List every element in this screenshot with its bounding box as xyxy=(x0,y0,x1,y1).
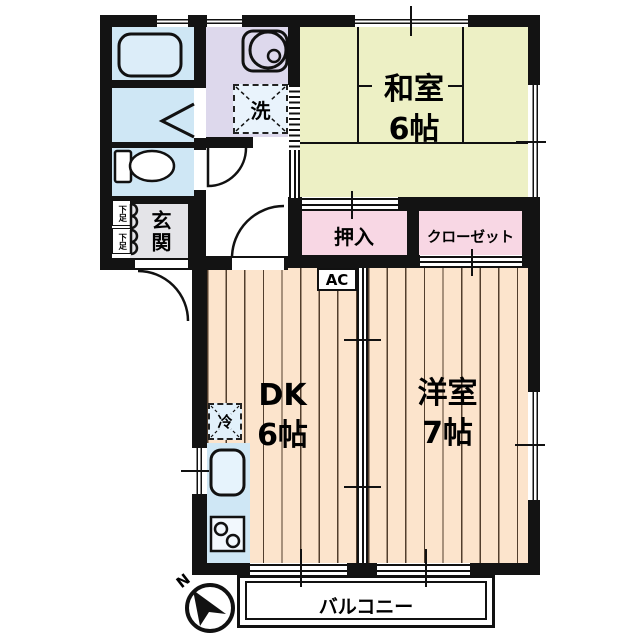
kitchen-counter xyxy=(207,443,250,563)
dk-size: 6帖 xyxy=(225,416,340,456)
wall xyxy=(242,15,355,27)
dk-label: DK 6帖 xyxy=(225,376,340,456)
toilet-room-floor xyxy=(112,148,194,196)
wall xyxy=(194,138,206,150)
balcony-label: バルコニー xyxy=(240,592,492,619)
youshitsu-size: 7帖 xyxy=(375,414,520,454)
door-tick xyxy=(344,486,381,488)
closet-label: クローゼット xyxy=(419,226,522,247)
dk-doorway xyxy=(232,256,284,270)
dk-name: DK xyxy=(225,376,340,416)
window-tick xyxy=(516,141,546,143)
oshiire-fusuma xyxy=(302,198,398,211)
wall xyxy=(522,197,528,255)
north-arrow-icon xyxy=(193,590,226,626)
wall xyxy=(206,137,253,148)
genkan-label: 玄関 xyxy=(150,206,170,258)
entrance-door-arc xyxy=(138,271,188,321)
window xyxy=(529,392,539,500)
compass-north-label: N xyxy=(173,570,194,592)
bathroom-doorway xyxy=(194,88,206,138)
balcony: バルコニー xyxy=(237,575,495,628)
window xyxy=(157,16,188,26)
wall xyxy=(528,197,540,392)
washitsu-sliding-door xyxy=(289,150,300,198)
toilet-doorway xyxy=(194,150,206,190)
window-tick xyxy=(181,470,209,472)
washitsu-size: 6帖 xyxy=(330,110,498,150)
washitsu-label: 和室 6帖 xyxy=(330,70,498,150)
compass-circle xyxy=(187,585,233,631)
ac-label: AC xyxy=(326,271,349,289)
wall xyxy=(528,500,540,575)
door-tick xyxy=(471,249,473,276)
door-tick xyxy=(351,191,353,219)
dk-youshitsu-partition xyxy=(357,268,368,563)
shoe-box-label: 下足 xyxy=(112,200,131,226)
wall xyxy=(407,211,419,255)
shoe-box-label: 下足 xyxy=(112,228,131,254)
wall xyxy=(347,563,377,575)
wall xyxy=(188,15,207,27)
window-tick xyxy=(410,6,412,36)
door-tick xyxy=(344,339,381,341)
window xyxy=(207,16,242,26)
entrance-doorway xyxy=(135,258,188,270)
wall xyxy=(288,255,420,268)
youshitsu-label: 洋室 7帖 xyxy=(375,374,520,454)
wall xyxy=(522,255,540,268)
wall xyxy=(528,15,540,85)
dk-door-arc xyxy=(232,206,284,258)
toilet-door-arc xyxy=(208,148,246,186)
wall xyxy=(100,15,112,270)
wall xyxy=(398,197,528,211)
wall xyxy=(206,256,232,270)
wall xyxy=(288,27,300,85)
floor-plan: 洗 冷 AC 下足 下足 和室 6帖 DK 6帖 洋室 7帖 押入 クローゼット… xyxy=(0,0,640,640)
oshiire-label: 押入 xyxy=(304,221,404,250)
wall xyxy=(192,258,207,448)
wall xyxy=(192,563,250,575)
accordion-door xyxy=(289,85,300,150)
washitsu-name: 和室 xyxy=(330,70,498,110)
wall xyxy=(188,198,206,258)
youshitsu-name: 洋室 xyxy=(375,374,520,414)
wall xyxy=(112,80,194,88)
washing-machine-label: 洗 xyxy=(251,95,271,124)
wall xyxy=(112,142,194,148)
wall xyxy=(194,27,206,88)
washing-machine-box: 洗 xyxy=(233,84,288,134)
ac-box: AC xyxy=(317,268,357,291)
